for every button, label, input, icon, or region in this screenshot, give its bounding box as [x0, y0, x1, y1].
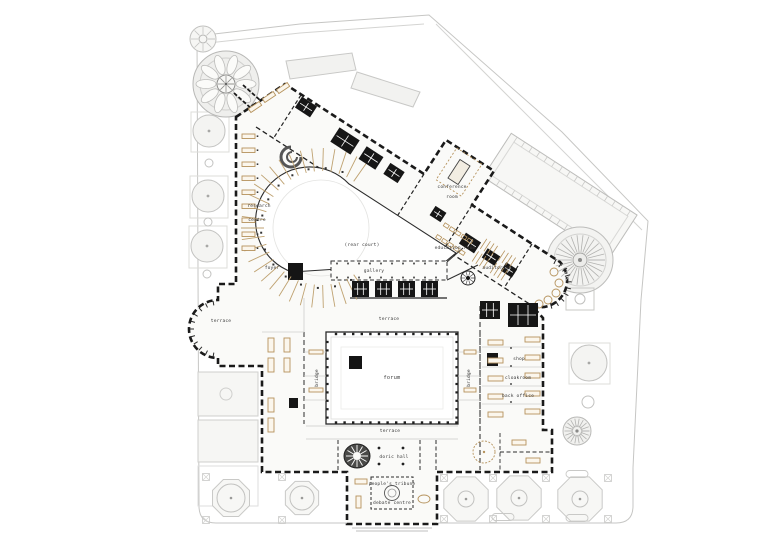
floor-plan-drawing: research centre foyer (rear court) galle… — [0, 0, 780, 551]
room-label-research-line1: research — [247, 203, 270, 209]
room-label-debate-centre: debate centre — [373, 500, 411, 506]
room-label-conference-line2: room — [446, 195, 458, 200]
context-roof-block-2 — [351, 72, 420, 107]
left-garden-plots — [189, 112, 229, 278]
room-label-conference-line1: conference — [437, 184, 466, 190]
room-label-cloakroom: cloakroom — [505, 375, 531, 381]
tribune-steps — [352, 528, 432, 531]
room-label-peoples-tribune: people's tribune — [369, 481, 416, 487]
room-label-terrace-bottom: terrace — [380, 428, 400, 434]
floor-plan-canvas: research centre foyer (rear court) galle… — [0, 0, 780, 551]
room-label-rear-court: (rear court) — [345, 242, 380, 248]
room-label-auditorium: auditorium — [482, 265, 511, 271]
room-label-gallery: gallery — [364, 268, 384, 274]
west-core — [289, 398, 298, 408]
room-label-shop: shop — [513, 356, 525, 362]
room-label-terrace-left: terrace — [211, 318, 231, 324]
room-label-research-line2: centre — [248, 217, 266, 223]
room-label-bridge-right: bridge — [466, 369, 472, 387]
right-garden-plots — [569, 343, 610, 408]
context-roof-block-1 — [286, 53, 356, 79]
room-label-education-room: education room — [435, 245, 476, 251]
room-label-terrace-mid: terrace — [379, 316, 399, 322]
room-label-foyer: foyer — [265, 265, 280, 271]
room-label-back-office: back office — [502, 393, 534, 399]
forum-core — [349, 356, 362, 369]
room-label-doric-hall: doric hall — [379, 454, 408, 460]
room-label-forum: forum — [383, 375, 400, 381]
room-label-bridge-left: bridge — [314, 369, 320, 387]
site-inner-top — [199, 24, 424, 44]
